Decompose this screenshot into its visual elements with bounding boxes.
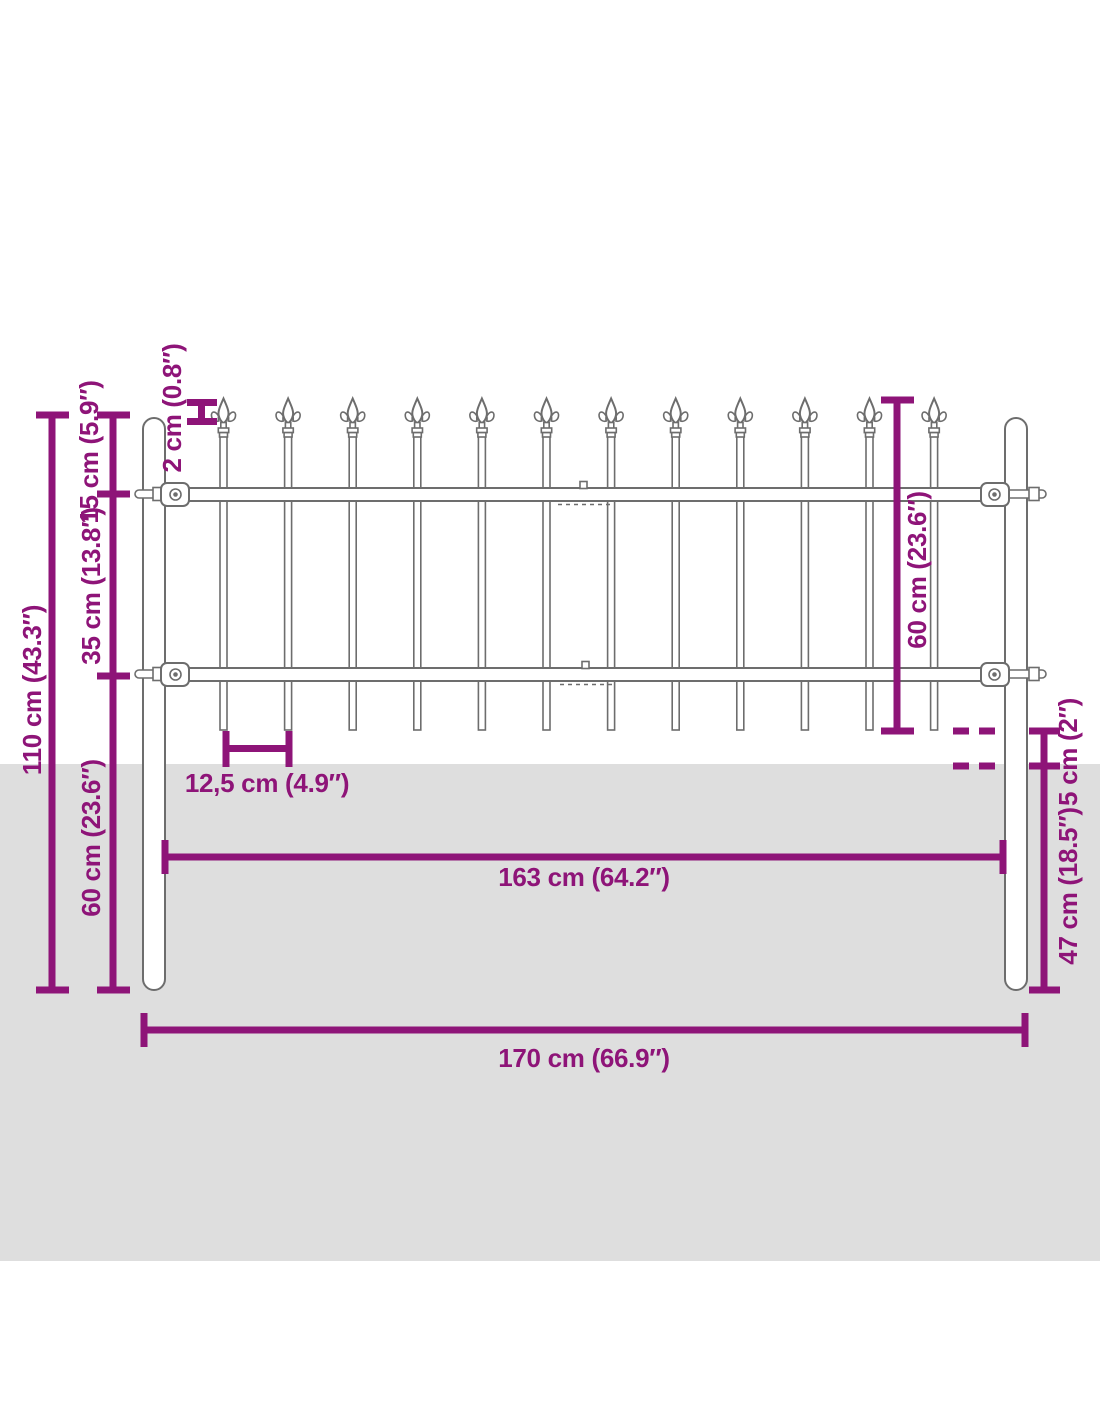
label-inner-width: 163 cm (64.2″) — [498, 864, 670, 890]
spear-finial-icon — [405, 399, 429, 438]
picket — [478, 429, 485, 730]
label-panel-height: 60 cm (23.6″) — [904, 491, 930, 648]
picket — [801, 429, 808, 730]
fence-dimension-diagram: 110 cm (43.3″) 15 cm (5.9″) 35 cm (13.8″… — [0, 0, 1100, 1422]
spear-finial-icon — [793, 399, 817, 438]
spear-finial-icon — [922, 399, 946, 438]
picket — [866, 429, 873, 730]
label-ground-clearance: 5 cm (2″) — [1055, 698, 1081, 806]
label-rail-spacing: 35 cm (13.8″) — [78, 507, 104, 664]
lower-rail — [164, 668, 1006, 681]
spear-finial-icon — [728, 399, 752, 438]
label-picket-spacing: 12,5 cm (4.9″) — [185, 770, 349, 796]
spear-finial-icon — [470, 399, 494, 438]
label-below-ground: 47 cm (18.5″) — [1055, 807, 1081, 964]
picket — [672, 429, 679, 730]
picket — [285, 429, 292, 730]
spear-finial-icon — [599, 399, 623, 438]
spear-finial-icon — [341, 399, 365, 438]
dimension-picket-spacing — [226, 731, 289, 767]
spear-finial-icon — [534, 399, 558, 438]
spear-finial-icon — [276, 399, 300, 438]
rail-seam-tab — [582, 662, 589, 669]
label-top-section: 15 cm (5.9″) — [76, 380, 102, 523]
label-post-below-panel: 60 cm (23.6″) — [78, 759, 104, 916]
picket — [349, 429, 356, 730]
label-total-width: 170 cm (66.9″) — [498, 1045, 670, 1071]
picket — [737, 429, 744, 730]
label-total-height: 110 cm (43.3″) — [19, 605, 45, 775]
label-spear-height: 2 cm (0.8″) — [159, 343, 185, 472]
spear-finial-icon — [857, 399, 881, 438]
picket — [414, 429, 421, 730]
diagram-canvas — [0, 0, 1100, 1422]
rail-seam-tab — [580, 482, 587, 489]
picket — [543, 429, 550, 730]
spear-finial-icon — [664, 399, 688, 438]
picket — [220, 429, 227, 730]
upper-rail — [164, 488, 1006, 501]
